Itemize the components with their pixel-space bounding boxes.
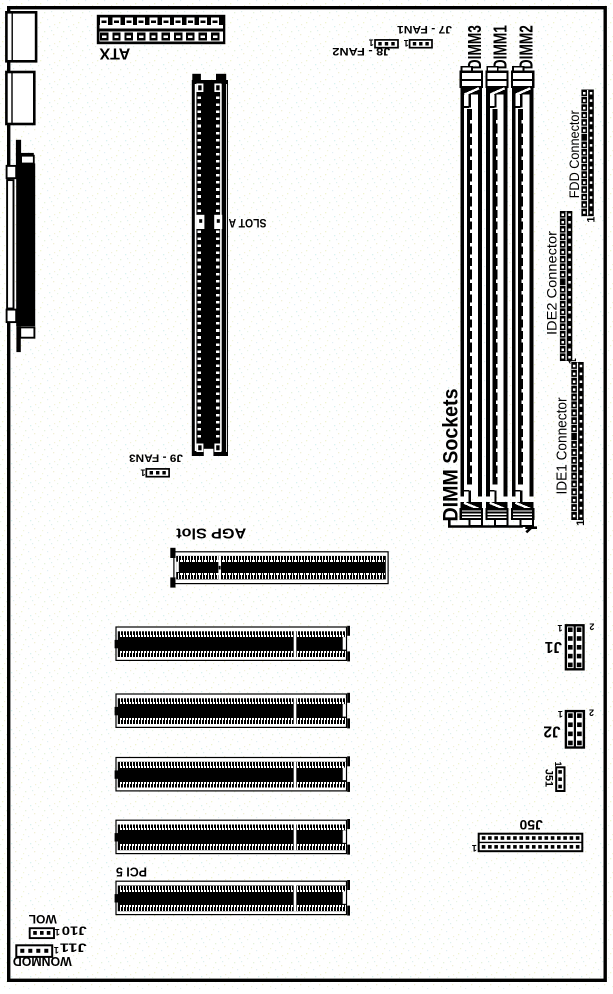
svg-text:WONMOD: WONMOD [13,954,72,968]
svg-text:DIMM Sockets: DIMM Sockets [439,388,463,521]
svg-text:J7 - FAN1: J7 - FAN1 [397,23,452,35]
svg-text:1: 1 [140,467,145,477]
svg-text:1: 1 [558,709,563,719]
svg-text:J9 - FAN3: J9 - FAN3 [129,452,183,464]
svg-text:PCI 5: PCI 5 [116,865,147,879]
svg-text:J10: J10 [61,924,86,938]
svg-text:J51: J51 [543,769,555,787]
svg-text:IDE2 Connector: IDE2 Connector [543,231,559,335]
svg-text:DIMM2: DIMM2 [516,25,536,69]
svg-text:2: 2 [589,708,594,718]
svg-text:J50: J50 [519,817,543,833]
svg-text:DIMM3: DIMM3 [465,25,485,69]
svg-text:ATX: ATX [99,44,130,61]
svg-text:1: 1 [369,37,374,47]
svg-text:1: 1 [585,217,597,223]
svg-text:1: 1 [55,927,60,937]
svg-text:WOL: WOL [29,912,57,926]
svg-text:DIMM1: DIMM1 [491,25,511,69]
svg-text:FDD Connector: FDD Connector [566,110,582,198]
svg-text:J2: J2 [543,722,560,739]
svg-text:1: 1 [472,843,477,853]
svg-text:1: 1 [553,761,563,766]
svg-text:AGP Slot: AGP Slot [176,524,246,541]
svg-text:1: 1 [557,623,562,633]
svg-text:SLOT A: SLOT A [228,216,266,230]
svg-text:1: 1 [404,38,409,48]
svg-text:1: 1 [575,520,587,526]
svg-text:2: 2 [589,622,594,632]
svg-text:J1: J1 [544,638,562,655]
svg-text:IDE1 Connector: IDE1 Connector [554,398,571,495]
svg-text:J11: J11 [59,941,86,955]
svg-text:1: 1 [54,945,59,955]
